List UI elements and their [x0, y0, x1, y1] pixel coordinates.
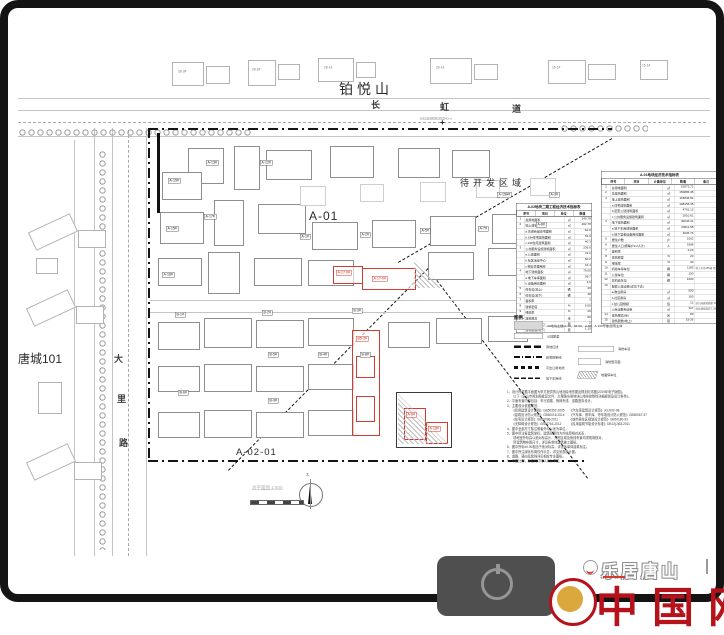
- legend-label: 地面停车位: [601, 372, 616, 377]
- table-row: a.物业用房 ㎡ 500: [602, 289, 718, 295]
- pending-area-label: 待开发区域: [460, 176, 525, 189]
- road-left-line: [94, 128, 95, 556]
- cell-value: 500: [674, 289, 694, 294]
- table-row: 1 总用地面积 ㎡ 249.78: [517, 217, 592, 223]
- table-row: d.商业服务设施 ㎡ 327 商业建筑面积 1.08万㎡ 详见: [602, 306, 718, 312]
- legend-swatch-icon: [578, 358, 601, 365]
- cell-index: 7: [517, 298, 525, 303]
- scale-bar: [250, 500, 304, 505]
- legend-label: 可出让用地线: [546, 365, 565, 370]
- table-row: b.社区活动中心 ㎡ 60.2: [517, 257, 592, 263]
- cell-unit: %: [663, 260, 675, 265]
- cell-unit: 辆: [663, 278, 675, 283]
- neighbor-building: [76, 306, 104, 324]
- neighbor-building: [28, 213, 78, 251]
- legend-item: 消防登高面: [578, 358, 630, 365]
- road-char: 道: [512, 102, 521, 115]
- neighbor-building: [430, 58, 472, 84]
- table-row: 10 机动车停车位 辆 1183 地上车位255辆 地下车位928辆: [602, 266, 718, 272]
- neighbor-building: [278, 64, 300, 80]
- cell-index: [517, 240, 525, 245]
- cell-value: 327: [674, 307, 694, 312]
- cell-index: 6: [602, 243, 611, 248]
- building-footprint: [330, 146, 374, 178]
- cell-unit: ㎡: [663, 231, 675, 236]
- column-header: 序号: [602, 179, 625, 185]
- table-title: A-01地块经济技术指标表: [602, 172, 718, 179]
- neighbor-building: [356, 62, 376, 78]
- cell-index: 3: [517, 246, 525, 251]
- cell-unit: [663, 249, 675, 254]
- building-tag: A-3#: [549, 192, 559, 198]
- table-row: 5 居住户数 户 1062: [602, 237, 718, 243]
- cell-value: [674, 284, 694, 289]
- cell-item: 居住人口(按每户3.2人计): [610, 243, 662, 248]
- building-tag: A-1#: [300, 234, 310, 240]
- building-tag: A-2#: [360, 232, 370, 238]
- cell-value: 16.4: [574, 263, 592, 268]
- cell-index: 1: [602, 185, 611, 190]
- column-header: 项目: [535, 211, 554, 217]
- building-footprint: [398, 148, 440, 178]
- road-annotation: 长虹道(规划红线宽40m): [420, 116, 452, 121]
- building-tag: A-7#: [478, 226, 488, 232]
- cell-remark: [694, 237, 717, 242]
- building-footprint: [208, 252, 240, 294]
- cell-item: a.地下车库建筑面积: [610, 226, 662, 231]
- cell-remark: [694, 231, 717, 236]
- site-boundary-left: [148, 128, 150, 462]
- scale-label: 总平面图 1:500: [252, 484, 283, 491]
- cell-remark: [694, 220, 717, 225]
- cell-remark: 幼儿园建筑面积 3120.6㎡: [694, 301, 717, 306]
- building-footprint: [162, 172, 202, 200]
- table-row: 11 公建车位 辆 100: [602, 271, 718, 277]
- neighbor-building: [474, 64, 498, 80]
- legend-label: 消防登高面: [605, 359, 620, 364]
- cell-index: 2: [517, 223, 525, 228]
- cell-index: [602, 289, 611, 294]
- road-left-line: [112, 128, 113, 556]
- cell-unit: 户: [663, 237, 675, 242]
- cell-value: 48: [574, 292, 592, 297]
- cell-value: 40246.31: [674, 220, 694, 225]
- cell-index: 1: [517, 217, 525, 222]
- column-header: 数值: [573, 211, 592, 217]
- neighbor-building: [588, 64, 616, 80]
- cell-item: 建筑密度: [524, 304, 564, 309]
- cell-item: 配套公建设施(详见下表): [610, 284, 662, 289]
- road-char: 里: [117, 392, 126, 405]
- north-axis-line: [310, 479, 311, 509]
- cell-remark: [694, 278, 717, 283]
- table-row: 13 配套公建设施(详见下表): [602, 283, 718, 289]
- north-label: 北: [306, 472, 309, 477]
- cell-unit: 班: [663, 301, 675, 306]
- cell-index: [517, 229, 525, 234]
- neighbor-building: [206, 66, 230, 84]
- table-row: a.普通商品住宅面积 ㎡ 62.9: [517, 228, 592, 234]
- table-row: c.幼儿园规模 班 12 幼儿园建筑面积 3120.6㎡: [602, 300, 718, 306]
- building-footprint: [388, 322, 430, 348]
- building-tag: A-15#: [166, 226, 178, 232]
- cell-value: 1183: [674, 266, 694, 271]
- building-footprint: [158, 322, 200, 350]
- bottom-dark-box: [437, 556, 555, 616]
- building-footprint: [254, 258, 302, 286]
- cell-item: 地下建筑面积: [524, 269, 564, 274]
- cell-unit: ㎡: [663, 202, 675, 207]
- cell-item: b.设备用房面积: [524, 281, 564, 286]
- column-header: 序号: [517, 211, 536, 217]
- china-emblem-core-icon: [557, 586, 583, 612]
- cell-remark: [694, 272, 717, 277]
- neighbor-tag: 28-1#: [324, 66, 332, 70]
- cell-value: 79.05: [574, 269, 592, 274]
- table-row: 8 建筑密度 % 6.95: [517, 303, 592, 309]
- road-left-line: [146, 128, 147, 556]
- neighbor-building: [548, 60, 586, 84]
- cell-item: a.地下车库面积: [524, 275, 564, 280]
- legend-wrapper: 图例. A#地块主楼(A-1#、3#-5#、A-8#、A-16#号楼)建筑主体 …: [514, 314, 724, 386]
- table-row: 2 总建筑面积 ㎡ 150886.38: [602, 190, 718, 196]
- table-body: 1 总用地面积 ㎡ 51872.71 2 总建筑面积 ㎡ 150886.38 3: [602, 185, 718, 324]
- red-building-tag: A-18#: [428, 426, 440, 432]
- cell-value: 3398: [674, 243, 694, 248]
- cell-index: [517, 258, 525, 263]
- cell-item: a.住宅建筑面积: [610, 202, 662, 207]
- cell-value: 29: [574, 287, 592, 292]
- table-row: a.地下车库建筑面积 ㎡ 34911.98: [602, 225, 718, 231]
- table-a01-wrapper: A-01地块经济技术指标表 序号项目计量单位数值备注 1 总用地面积 ㎡ 518…: [601, 171, 721, 301]
- cell-value: 1600: [674, 278, 694, 283]
- cell-unit: ㎡: [564, 246, 574, 251]
- cell-index: [602, 226, 611, 231]
- table-row: a.公建面积 ㎡ 41.2: [517, 251, 592, 257]
- building-footprint: [308, 364, 354, 390]
- cell-remark: [694, 243, 717, 248]
- legend-item: 消防车道: [578, 345, 630, 352]
- cell-item: 总用地面积: [610, 185, 662, 190]
- road-char: 大: [114, 352, 123, 365]
- legend-swatch-icon: [514, 321, 543, 330]
- boundary-heavy-segment: [157, 133, 160, 213]
- watermark-cursor-mark: [706, 559, 708, 574]
- cell-unit: ㎡: [564, 275, 574, 280]
- legend-label: 公建配套: [547, 334, 559, 339]
- design-notes: 1、设计所依据平面图为甲方提供的山地测绘地形图及规划红线图(2019年电子版图)…: [507, 390, 722, 464]
- column-header: 单位: [554, 211, 573, 217]
- neighbor-tag: 28-2#: [252, 68, 260, 72]
- red-highlight-box: [362, 268, 416, 290]
- building-footprint: [258, 204, 306, 234]
- cell-index: [517, 252, 525, 257]
- cell-index: [602, 307, 611, 312]
- table-row: 7 容积率 2: [517, 298, 592, 304]
- cell-item: c.幼儿园规模: [610, 301, 662, 306]
- neighbor-building: [38, 382, 62, 414]
- cell-item: a.物业用房: [610, 289, 662, 294]
- building-footprint: [204, 364, 252, 392]
- legend-label: 地下车库线: [546, 376, 561, 381]
- cell-remark: [694, 197, 717, 202]
- building-footprint: [214, 200, 244, 246]
- building-tag: B-3#: [352, 308, 362, 314]
- cell-index: 5: [602, 237, 611, 242]
- courtyard-detail: [300, 186, 326, 206]
- cell-remark: [694, 284, 717, 289]
- cell-index: [602, 301, 611, 306]
- road-char: 长: [371, 98, 380, 111]
- table-header-row: 序号项目单位数值: [517, 211, 592, 217]
- legend-swatch-icon: [578, 346, 614, 352]
- cell-item: b.18#住宅建筑面积: [524, 234, 564, 239]
- cell-unit: ㎡: [564, 223, 574, 228]
- legend-swatch-icon: [577, 371, 598, 379]
- building-footprint: [308, 410, 354, 436]
- table-row: b.社区用房 ㎡ 160: [602, 295, 718, 301]
- cell-unit: ㎡: [663, 289, 675, 294]
- table-row: 12 非机动车位 辆 1600: [602, 277, 718, 283]
- column-header: 备注: [694, 179, 717, 185]
- cell-index: [602, 208, 611, 213]
- cell-value: 30: [674, 260, 694, 265]
- cell-unit: ㎡: [564, 263, 574, 268]
- cell-item: 容积率: [524, 298, 564, 303]
- neighbor-tag: 28-3#: [178, 70, 186, 74]
- building-footprint: [266, 150, 312, 180]
- cell-item: b.地下室和设备用房面积: [610, 231, 662, 236]
- cell-unit: ㎡: [564, 229, 574, 234]
- cell-index: 9: [602, 260, 611, 265]
- building-footprint: [204, 318, 252, 348]
- cell-item: 地下建筑面积: [610, 220, 662, 225]
- china-emblem-icon: [549, 578, 597, 626]
- power-bar-icon: [496, 564, 500, 574]
- cell-remark: [694, 255, 717, 260]
- table-row: 3 公共服务设施建筑面积 ㎡ 236.6: [517, 245, 592, 251]
- cell-value: 53.9: [574, 234, 592, 239]
- legend-right-column: 消防车道 消防登高面 地面停车位: [578, 345, 630, 384]
- neighbor-tag: 15-1#: [642, 64, 650, 68]
- cell-unit: ㎡: [564, 217, 574, 222]
- neighbor-building: [78, 230, 106, 248]
- cell-unit: 辆: [663, 266, 675, 271]
- cell-item: 非机动车位: [610, 278, 662, 283]
- legend-label: 用地红线: [546, 344, 558, 349]
- road-top-line: [18, 110, 710, 111]
- road-left-line: [74, 140, 75, 556]
- neighbor-building: [26, 289, 76, 327]
- cell-value: 20: [674, 255, 694, 260]
- cell-remark: 地上车位255辆 地下车位928辆: [694, 266, 717, 271]
- cell-value: 202.78: [574, 223, 592, 228]
- cell-unit: ㎡: [663, 208, 675, 213]
- cell-index: 8: [517, 304, 525, 309]
- internal-road-line: [150, 300, 530, 301]
- cell-remark: [694, 260, 717, 265]
- building-tag: A-5#: [420, 228, 430, 234]
- neighbor-building: [36, 258, 58, 274]
- cell-remark: [694, 191, 717, 196]
- cell-unit: ㎡: [564, 234, 574, 239]
- neighbor-building: [26, 443, 76, 481]
- cell-item: d.商业服务设施: [610, 307, 662, 312]
- cell-unit: ㎡: [663, 191, 675, 196]
- red-building-tag: B5-3#: [356, 336, 368, 342]
- cell-index: 10: [602, 266, 611, 271]
- cell-item: b.社区活动中心: [524, 258, 564, 263]
- site-boundary-top: [148, 128, 612, 130]
- building-tag: B-9#: [268, 398, 278, 404]
- legend-label: A#地块主楼(A-1#、3#-5#、A-8#、A-16#号楼)建筑主体: [547, 323, 622, 328]
- building-tag: B-1#: [175, 312, 185, 318]
- cell-item: b.配套公建建筑面积: [610, 208, 662, 213]
- cell-unit: 人: [663, 243, 675, 248]
- cell-unit: %: [663, 255, 675, 260]
- cell-index: 13: [602, 284, 611, 289]
- cell-value: 51872.71: [674, 185, 694, 190]
- road-top-median: [18, 122, 706, 123]
- neighborhood-label: 铂悦山: [339, 79, 393, 99]
- cell-value: 60.2: [574, 258, 592, 263]
- cell-remark: [694, 295, 717, 300]
- cell-unit: ㎡: [663, 307, 675, 312]
- building-footprint: [256, 412, 304, 438]
- leju-logo-arc-icon: [586, 565, 594, 574]
- legend-swatch-icon: [514, 377, 542, 379]
- legend-item: 公建配套: [514, 333, 622, 340]
- legend-swatch-icon: [514, 356, 542, 358]
- legend-swatch-icon: [514, 333, 543, 339]
- building-tag: A-8#: [536, 222, 546, 228]
- table-row: 9 绿地率 % 30: [602, 260, 718, 266]
- cell-index: [602, 231, 611, 236]
- cell-unit: ㎡: [564, 240, 574, 245]
- cell-item: 居住户数: [610, 237, 662, 242]
- cell-remark: [694, 202, 717, 207]
- table-row: 7 容积率 2.23: [602, 248, 718, 254]
- red-building-tag: A-17-0#: [372, 276, 387, 282]
- cell-value: 2.23: [674, 249, 694, 254]
- cell-value: 62.9: [574, 229, 592, 234]
- notes-wrapper: 1、设计所依据平面图为甲方提供的山地测绘地形图及规划红线图(2019年电子版图)…: [507, 390, 721, 490]
- cell-index: 4: [602, 220, 611, 225]
- cell-unit: [564, 298, 574, 303]
- cell-index: 11: [602, 272, 611, 277]
- building-footprint: [158, 366, 200, 392]
- cell-unit: %: [564, 304, 574, 309]
- cell-value: 2: [574, 298, 592, 303]
- cell-value: 59.7: [574, 275, 592, 280]
- cell-index: 6: [517, 292, 525, 297]
- building-footprint: [308, 318, 354, 346]
- building-footprint: [312, 222, 358, 250]
- legend-label: 消防车道: [618, 346, 630, 351]
- cell-value: 40.3: [574, 240, 592, 245]
- cell-unit: ㎡: [564, 269, 574, 274]
- red-building-tag: A-17-0#: [336, 270, 351, 276]
- building-footprint: [234, 146, 260, 190]
- building-tag: A-17#: [204, 214, 216, 220]
- building-tag: A-13#: [206, 160, 218, 166]
- neighbor-tag: 29-1#: [436, 66, 444, 70]
- cell-unit: ㎡: [663, 220, 675, 225]
- courtyard-detail: [420, 182, 446, 202]
- internal-road-line: [150, 312, 530, 313]
- cell-item: 建筑密度: [610, 255, 662, 260]
- cell-index: [517, 281, 525, 286]
- table-row: b.设备用房面积 ㎡ 3.9: [517, 280, 592, 286]
- cell-remark: [694, 208, 717, 213]
- legend-item: A#地块主楼(A-1#、3#-5#、A-8#、A-16#号楼)建筑主体: [514, 322, 622, 329]
- cell-remark: 商业建筑面积 1.08万㎡ 详见: [694, 307, 717, 312]
- legend-item: 地面停车位: [578, 371, 630, 378]
- building-tag: B-2#: [262, 310, 272, 316]
- cell-value: 249.78: [574, 217, 592, 222]
- table-header-row: 序号项目计量单位数值备注: [602, 179, 718, 185]
- cell-unit: ㎡: [663, 214, 675, 219]
- building-footprint: [436, 318, 482, 344]
- cell-index: 7: [602, 249, 611, 254]
- table-a02-wrapper: A-02地块二期工程经济技术指标表 序号项目单位数值 1 总用地面积 ㎡ 249…: [516, 203, 594, 308]
- building-tag: B-6#: [178, 390, 188, 396]
- building-tag: A-12#: [260, 160, 272, 166]
- cell-item: 公建车位: [610, 272, 662, 277]
- cell-item: c.物业管理用房: [524, 263, 564, 268]
- neighbor-building: [640, 60, 668, 80]
- red-brand-text: 中国网: [596, 574, 724, 635]
- building-footprint: [204, 410, 252, 438]
- cell-value: 3.9: [574, 281, 592, 286]
- courtyard-detail: [360, 184, 384, 202]
- table-row: c.19#住宅建筑面积 ㎡ 40.3: [517, 240, 592, 246]
- cell-value: 34911.98: [674, 226, 694, 231]
- building-footprint: [158, 412, 200, 438]
- table-row: b.配套公建建筑面积 ㎡ 4701.12: [602, 208, 718, 214]
- table-a01-indicators: A-01地块经济技术指标表 序号项目计量单位数值备注 1 总用地面积 ㎡ 518…: [601, 171, 718, 324]
- column-header: 计量单位: [648, 179, 671, 185]
- cell-unit: ㎡: [663, 185, 675, 190]
- building-footprint: [372, 220, 416, 248]
- table-row: 4 地下建筑面积 ㎡ 40246.31: [602, 219, 718, 225]
- cell-index: [517, 263, 525, 268]
- building-tag: A-16#: [162, 272, 174, 278]
- cell-index: [517, 234, 525, 239]
- cell-index: 4: [517, 269, 525, 274]
- cell-unit: [663, 284, 675, 289]
- table-row: 3 地上建筑面积 ㎡ 115846.84: [602, 196, 718, 202]
- cell-value: 12: [674, 301, 694, 306]
- cell-item: 停车位(地上): [524, 287, 564, 292]
- building-footprint: [430, 216, 476, 246]
- survey-cross-icon: +: [440, 118, 445, 127]
- legend-label: 建筑控制线: [546, 355, 561, 360]
- legend-title: 图例.: [514, 314, 724, 321]
- tree-column-icon: [98, 150, 107, 550]
- cell-value: 2910.61: [674, 214, 694, 219]
- cell-value: 4036.76: [674, 231, 694, 236]
- cell-item: c.公共服务设施建筑面积: [610, 214, 662, 219]
- cell-unit: 辆: [564, 292, 574, 297]
- cell-item: a.公建面积: [524, 252, 564, 257]
- cell-index: [602, 202, 611, 207]
- screenshot-root: { "map": { "neighborhood_top": "铂悦山", "n…: [0, 0, 724, 602]
- building-tag: B-4#: [318, 352, 328, 358]
- leju-logo-icon: [583, 560, 598, 575]
- cell-value: 1062: [674, 237, 694, 242]
- road-char: 路: [119, 436, 128, 449]
